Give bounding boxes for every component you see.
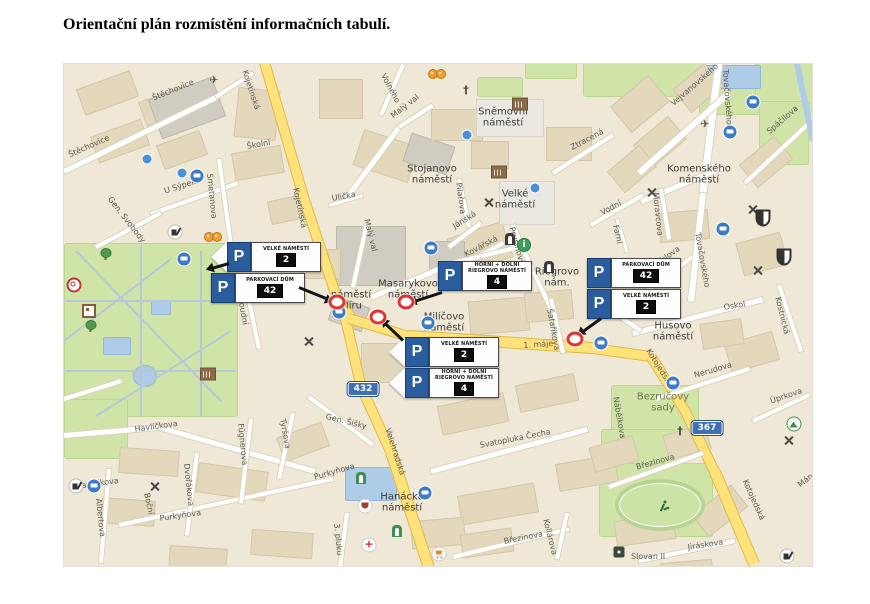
building-block bbox=[76, 70, 139, 116]
parking-p-icon: P bbox=[405, 337, 429, 367]
building-block bbox=[468, 296, 531, 335]
trash-icon bbox=[168, 225, 183, 240]
park-path bbox=[140, 246, 142, 416]
trash-icon bbox=[780, 549, 795, 564]
water-area bbox=[103, 337, 131, 355]
poi-icon bbox=[142, 154, 153, 165]
bus-icon bbox=[190, 169, 205, 184]
bus-icon bbox=[421, 316, 436, 331]
park-area bbox=[525, 63, 577, 79]
airplane-icon: ✈ bbox=[209, 69, 218, 88]
street-label: Smetanova bbox=[205, 173, 219, 219]
theater-icon bbox=[358, 499, 373, 514]
tree-icon bbox=[100, 248, 111, 260]
bus-icon bbox=[594, 336, 609, 351]
door-icon bbox=[356, 472, 366, 484]
sign-panel: VELKÉ NÁMĚSTÍ2 bbox=[251, 242, 321, 272]
page-title: Orientační plán rozmístění informačních … bbox=[63, 16, 390, 34]
sign-destination-label: PARKOVACÍ DŮM bbox=[622, 263, 670, 269]
water-area bbox=[151, 301, 171, 315]
museum-icon bbox=[200, 368, 216, 381]
street-label: Kotojedská bbox=[741, 478, 767, 521]
sign-destination-label: HORNÍ + DOLNÍ RIEGROVO NÁMĚSTÍ bbox=[433, 370, 495, 382]
restaurant-icon bbox=[484, 198, 495, 209]
square-label: Riegrovo nám. bbox=[535, 268, 579, 289]
square-label: Komenského náměstí bbox=[667, 165, 731, 186]
bus-icon bbox=[746, 95, 761, 110]
slovan-icon bbox=[614, 547, 625, 558]
road-number-shield: 432 bbox=[348, 382, 379, 396]
street-label: Farní bbox=[611, 224, 624, 245]
runner-icon bbox=[657, 499, 672, 514]
parking-sign: PVELKÉ NÁMĚSTÍ2 bbox=[587, 289, 681, 319]
gears-icon bbox=[206, 232, 222, 242]
parking-sign: PHORNÍ + DOLNÍ RIEGROVO NÁMĚSTÍ4 bbox=[389, 368, 499, 398]
pointer-arrow bbox=[582, 317, 602, 332]
parking-sign: PVELKÉ NÁMĚSTÍ2 bbox=[211, 242, 321, 272]
street-label: Slovan II bbox=[631, 552, 665, 561]
church-icon: † bbox=[463, 79, 469, 98]
hospital-icon: + bbox=[362, 538, 377, 553]
tree-icon bbox=[85, 320, 96, 332]
parking-sign-cluster: PVELKÉ NÁMĚSTÍ2PPARKOVACÍ DŮM42 bbox=[211, 242, 321, 303]
sign-destination-label: HORNÍ + DOLNÍ RIEGROVO NÁMĚSTÍ bbox=[466, 263, 528, 275]
restaurant-icon bbox=[150, 482, 161, 493]
bus-icon bbox=[177, 252, 192, 267]
museum-icon bbox=[491, 166, 507, 179]
street-label: Ulička bbox=[331, 190, 356, 203]
parking-p-icon: P bbox=[227, 242, 251, 272]
building-block bbox=[168, 545, 228, 567]
gears-icon bbox=[430, 69, 446, 79]
door-icon bbox=[392, 525, 402, 537]
gate-icon bbox=[544, 261, 554, 273]
sign-free-spaces-count: 42 bbox=[257, 284, 284, 298]
city-map-image: ŠtěchoviceŠtěchoviceKojetínskáKojetínská… bbox=[63, 63, 813, 567]
cart-icon bbox=[432, 547, 447, 562]
sign-free-spaces-count: 4 bbox=[454, 382, 474, 396]
building-block bbox=[231, 145, 285, 181]
callout-wedge bbox=[389, 337, 405, 367]
info-icon: i bbox=[517, 238, 531, 252]
building-block bbox=[457, 482, 539, 525]
rotunda-icon bbox=[67, 278, 82, 293]
sign-panel: VELKÉ NÁMĚSTÍ2 bbox=[429, 337, 499, 367]
crest-icon bbox=[756, 210, 771, 227]
street-label: Oskol bbox=[723, 300, 746, 312]
building-block bbox=[515, 373, 580, 413]
parking-sign: PVELKÉ NÁMĚSTÍ2 bbox=[389, 337, 499, 367]
sign-destination-label: VELKÉ NÁMĚSTÍ bbox=[441, 342, 487, 348]
sign-free-spaces-count: 4 bbox=[487, 275, 507, 289]
bus-icon bbox=[716, 222, 731, 237]
street-label: Pilařova bbox=[454, 182, 467, 215]
mountain-icon bbox=[787, 417, 802, 432]
parking-sign-cluster: PPARKOVACÍ DŮM42PVELKÉ NÁMĚSTÍ2 bbox=[587, 258, 681, 319]
street-label: Mánesova bbox=[796, 457, 813, 489]
restaurant-icon bbox=[304, 337, 315, 348]
bus-icon bbox=[666, 376, 681, 391]
street-label: Jiráskova bbox=[687, 537, 724, 551]
bus-icon bbox=[87, 479, 102, 494]
location-marker bbox=[370, 310, 387, 325]
sign-free-spaces-count: 2 bbox=[454, 348, 474, 362]
square-label: Stojanovo náměstí bbox=[407, 165, 457, 186]
parking-sign-cluster: PHORNÍ + DOLNÍ RIEGROVO NÁMĚSTÍ4 bbox=[438, 261, 532, 291]
square-label: Sněmovní náměstí bbox=[478, 108, 528, 129]
sign-panel: PARKOVACÍ DŮM42 bbox=[235, 273, 305, 303]
square-label: Bezručovy sady bbox=[637, 393, 689, 414]
sign-free-spaces-count: 2 bbox=[276, 253, 296, 267]
building-block bbox=[319, 79, 363, 119]
maze-icon bbox=[82, 304, 96, 318]
bus-icon bbox=[418, 486, 433, 501]
bus-icon bbox=[723, 125, 738, 140]
sign-destination-label: VELKÉ NÁMĚSTÍ bbox=[623, 294, 669, 300]
park-path bbox=[200, 251, 202, 416]
parking-p-icon: P bbox=[587, 289, 611, 319]
parking-p-icon: P bbox=[405, 368, 429, 398]
park-area bbox=[477, 77, 523, 97]
building-block bbox=[660, 559, 714, 567]
building-block bbox=[118, 447, 180, 477]
sign-panel: HORNÍ + DOLNÍ RIEGROVO NÁMĚSTÍ4 bbox=[462, 261, 532, 291]
sign-free-spaces-count: 2 bbox=[636, 300, 656, 314]
restaurant-icon bbox=[647, 188, 658, 199]
poi-icon bbox=[530, 183, 541, 194]
document-page: Orientační plán rozmístění informačních … bbox=[0, 0, 870, 604]
poi-icon bbox=[462, 130, 473, 141]
church-icon: † bbox=[677, 420, 683, 439]
bus-icon bbox=[424, 241, 439, 256]
crest-icon bbox=[777, 249, 792, 266]
restaurant-icon bbox=[784, 436, 795, 447]
poi-icon bbox=[177, 168, 188, 179]
sign-destination-label: VELKÉ NÁMĚSTÍ bbox=[263, 247, 309, 253]
restaurant-icon bbox=[753, 266, 764, 277]
building-block bbox=[250, 529, 314, 559]
parking-p-icon: P bbox=[211, 273, 235, 303]
sign-destination-label: PARKOVACÍ DŮM bbox=[246, 278, 294, 284]
location-marker bbox=[567, 332, 584, 347]
trash-icon bbox=[69, 479, 84, 494]
parking-p-icon: P bbox=[587, 258, 611, 288]
gate-icon bbox=[505, 233, 515, 245]
sign-free-spaces-count: 42 bbox=[633, 269, 660, 283]
sign-panel: VELKÉ NÁMĚSTÍ2 bbox=[611, 289, 681, 319]
parking-sign: PPARKOVACÍ DŮM42 bbox=[587, 258, 681, 288]
sign-panel: HORNÍ + DOLNÍ RIEGROVO NÁMĚSTÍ4 bbox=[429, 368, 499, 398]
parking-sign: PHORNÍ + DOLNÍ RIEGROVO NÁMĚSTÍ4 bbox=[438, 261, 532, 291]
parking-p-icon: P bbox=[438, 261, 462, 291]
location-marker bbox=[398, 295, 415, 310]
sign-panel: PARKOVACÍ DŮM42 bbox=[611, 258, 681, 288]
square-label: Husovo náměstí bbox=[653, 322, 693, 343]
building-block bbox=[437, 392, 510, 435]
street-label: Purkyňova bbox=[159, 508, 202, 523]
parking-sign-cluster: PVELKÉ NÁMĚSTÍ2PHORNÍ + DOLNÍ RIEGROVO N… bbox=[389, 337, 499, 398]
airplane-icon: ✈ bbox=[700, 113, 709, 132]
road-number-shield: 367 bbox=[692, 421, 723, 435]
location-marker bbox=[329, 295, 346, 310]
callout-wedge bbox=[389, 368, 405, 398]
museum-icon bbox=[512, 98, 528, 111]
